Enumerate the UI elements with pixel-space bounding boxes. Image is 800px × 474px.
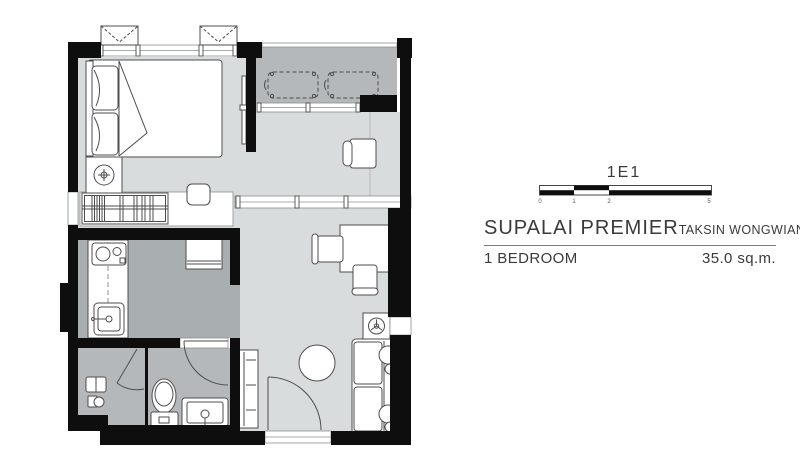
scale-tick: 2 [607,199,611,205]
kitchen-sink [92,303,125,335]
stove [92,243,126,265]
pillow [92,113,118,155]
scale-tick: 0 [538,199,542,205]
unit-area: 35.0 sq.m. [702,250,776,267]
casement-window [200,26,237,45]
ledge-railing [262,43,397,47]
shower [86,377,106,407]
unit-info-panel: 1E1 0 1 2 5 SUPALAI PREMIER TAKSIN WONGW… [484,160,776,267]
upper-living-floor [256,112,400,196]
side-window [390,317,411,335]
floor-plan-drawing [0,0,460,474]
toilet [151,379,178,428]
unit-summary-row: 1 BEDROOM 35.0 sq.m. [484,250,776,267]
unit-type: 1 BEDROOM [484,250,578,267]
unit-code: 1E1 [535,164,713,182]
scale-tick: 5 [707,199,711,205]
ac-ledge-floor [256,47,397,103]
scale-tick: 1 [572,199,576,205]
project-location: TAKSIN WONGWIANYAI [679,223,800,237]
desk-chair [312,234,343,264]
nightstand [86,157,122,193]
project-title-row: SUPALAI PREMIER TAKSIN WONGWIANYAI [484,217,776,246]
bed [86,60,222,157]
scale-bar: 0 1 2 5 [535,185,713,205]
floor-plan-page: 1E1 0 1 2 5 SUPALAI PREMIER TAKSIN WONGW… [0,0,800,474]
entrance-cabinet [239,350,258,428]
round-table [299,345,335,381]
desk-chair [352,265,378,295]
washing-machine [363,313,390,339]
bathroom-vanity [182,398,228,427]
pouf [187,184,210,205]
casement-window [101,26,138,45]
side-window [68,192,78,225]
project-name: SUPALAI PREMIER [484,217,679,240]
armchair [343,139,376,168]
